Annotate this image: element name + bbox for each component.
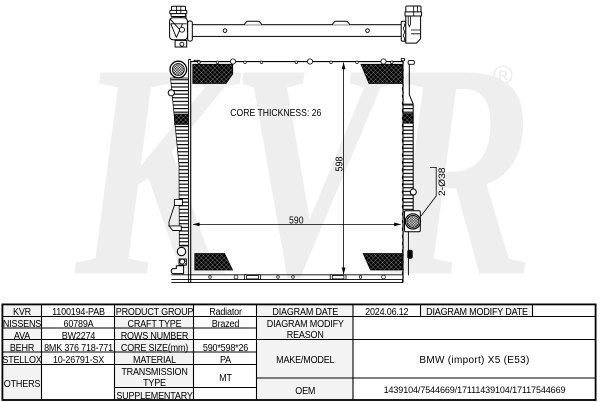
svg-text:590: 590	[289, 215, 304, 226]
svg-text:598: 598	[334, 156, 345, 171]
svg-text:CORE THICKNESS: 26: CORE THICKNESS: 26	[230, 108, 321, 119]
svg-text:2-Ø38: 2-Ø38	[437, 168, 447, 197]
svg-text:R: R	[498, 68, 508, 83]
svg-text:KVR: KVR	[72, 1, 534, 341]
